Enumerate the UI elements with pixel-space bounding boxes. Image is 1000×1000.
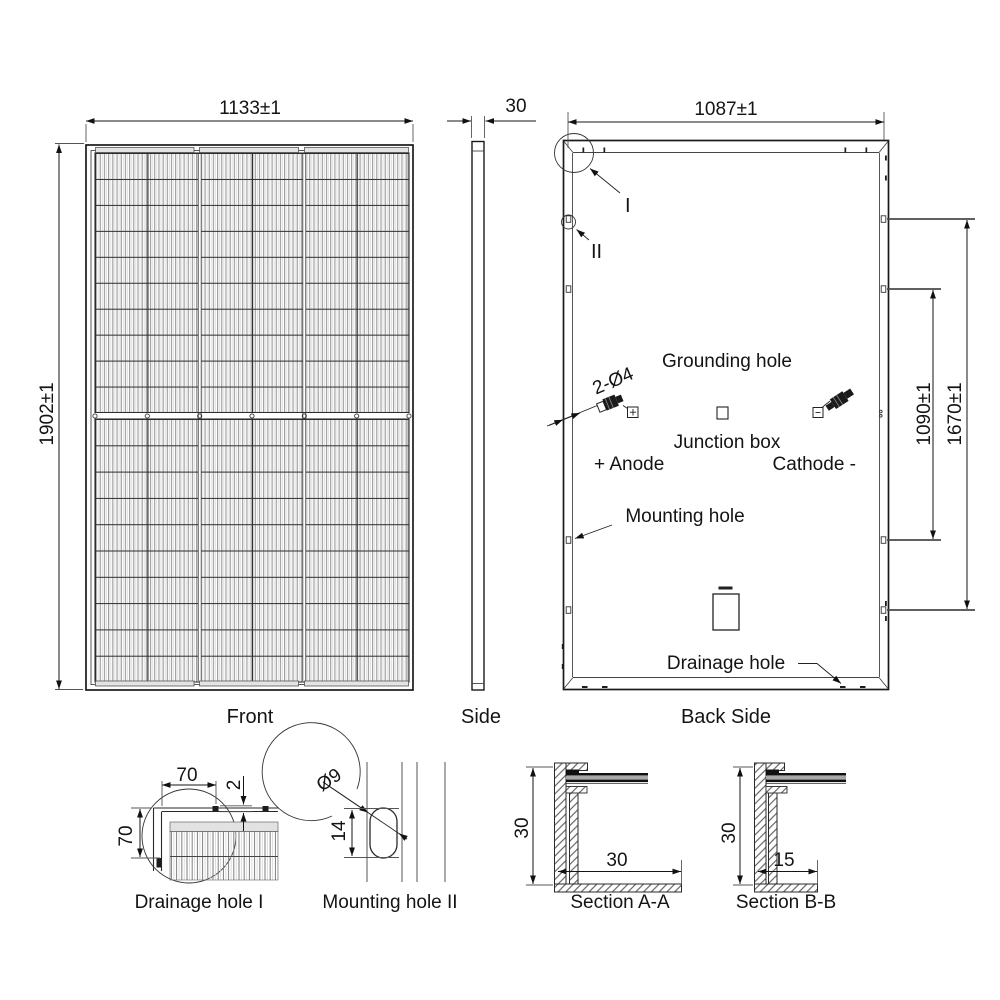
section-bb-flange-dim-text: 15	[773, 850, 794, 871]
back-width-dim-text: 1087±1	[694, 99, 757, 120]
solar-panel-engineering-drawing: 1133±1 1902±1 Front 30 Side	[0, 0, 1000, 1000]
drainage-detail-caption: Drainage hole I	[135, 892, 264, 913]
drainage-width-dim-text: 70	[176, 765, 197, 786]
back-outer-span-dim-text: 1670±1	[945, 382, 966, 445]
drainage-slot-dim-text: 2	[224, 780, 245, 791]
detail-marker-1-text: I	[625, 195, 631, 217]
anode-label: + Anode	[594, 454, 664, 475]
drainage-hole-label: Drainage hole	[667, 653, 785, 674]
section-aa-height-dim-text: 30	[512, 817, 533, 838]
section-aa-caption: Section A-A	[570, 892, 670, 913]
section-bb-caption: Section B-B	[736, 892, 836, 913]
mounting-length-dim-text: 14	[329, 820, 350, 842]
side-caption: Side	[461, 706, 501, 728]
mounting-detail-caption: Mounting hole II	[322, 892, 457, 913]
grounding-hole-label: Grounding hole	[662, 351, 792, 372]
front-height-dim-text: 1902±1	[37, 382, 58, 445]
front-caption: Front	[227, 706, 274, 728]
front-cell-grid-bottom	[95, 419, 409, 682]
section-aa-flange-dim-text: 30	[606, 850, 627, 871]
back-caption: Back Side	[681, 706, 771, 728]
junction-box-symbol	[717, 407, 728, 419]
front-middle-gap	[93, 413, 411, 419]
back-inner-span-dim-text: 1090±1	[914, 382, 935, 445]
junction-box-label: Junction box	[674, 432, 781, 453]
front-cell-grid-top	[95, 153, 409, 413]
side-profile	[472, 142, 484, 691]
side-thickness-dim-text: 30	[505, 96, 526, 117]
drainage-height-dim-text: 70	[116, 825, 137, 846]
mounting-slot	[370, 808, 397, 858]
mounting-hole-label: Mounting hole	[625, 506, 744, 527]
front-width-dim-text: 1133±1	[219, 98, 281, 119]
section-bb-height-dim-text: 30	[719, 822, 740, 843]
detail-marker-2-text: II	[591, 241, 602, 263]
front-view: 1133±1 1902±1 Front	[37, 98, 413, 728]
cathode-label: Cathode -	[773, 454, 856, 475]
